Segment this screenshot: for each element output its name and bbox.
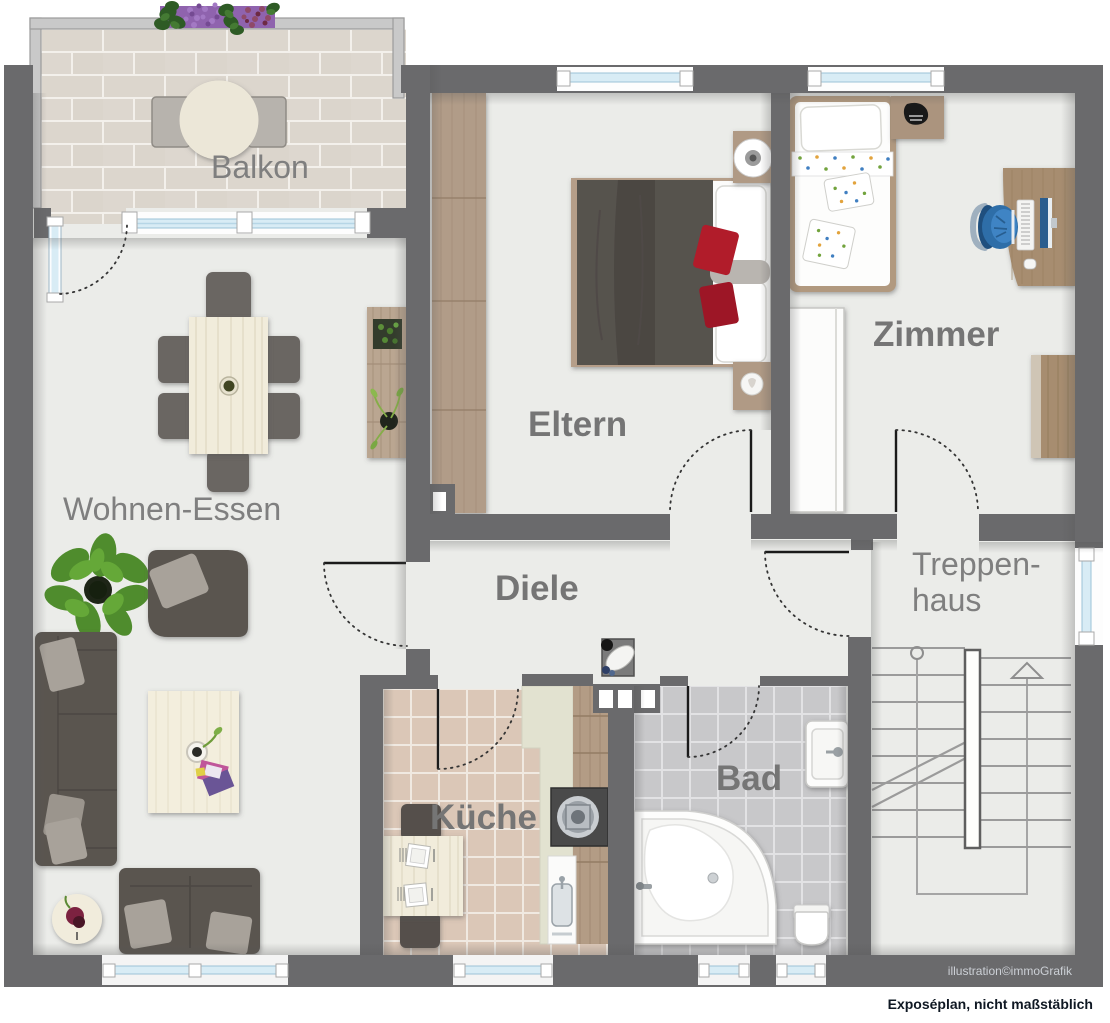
svg-text:Wohnen-Essen: Wohnen-Essen: [63, 491, 281, 527]
svg-text:Bad: Bad: [716, 759, 782, 798]
svg-text:Balkon: Balkon: [211, 149, 309, 185]
svg-text:Küche: Küche: [430, 798, 537, 837]
svg-text:Eltern: Eltern: [528, 405, 627, 444]
svg-text:illustration©immoGrafik: illustration©immoGrafik: [948, 964, 1073, 978]
svg-text:Treppen-: Treppen-: [912, 546, 1041, 582]
svg-text:Diele: Diele: [495, 569, 579, 608]
svg-text:Zimmer: Zimmer: [873, 315, 1000, 354]
svg-text:haus: haus: [912, 582, 981, 618]
svg-text:Exposéplan, nicht maßstäblich: Exposéplan, nicht maßstäblich: [888, 996, 1093, 1012]
